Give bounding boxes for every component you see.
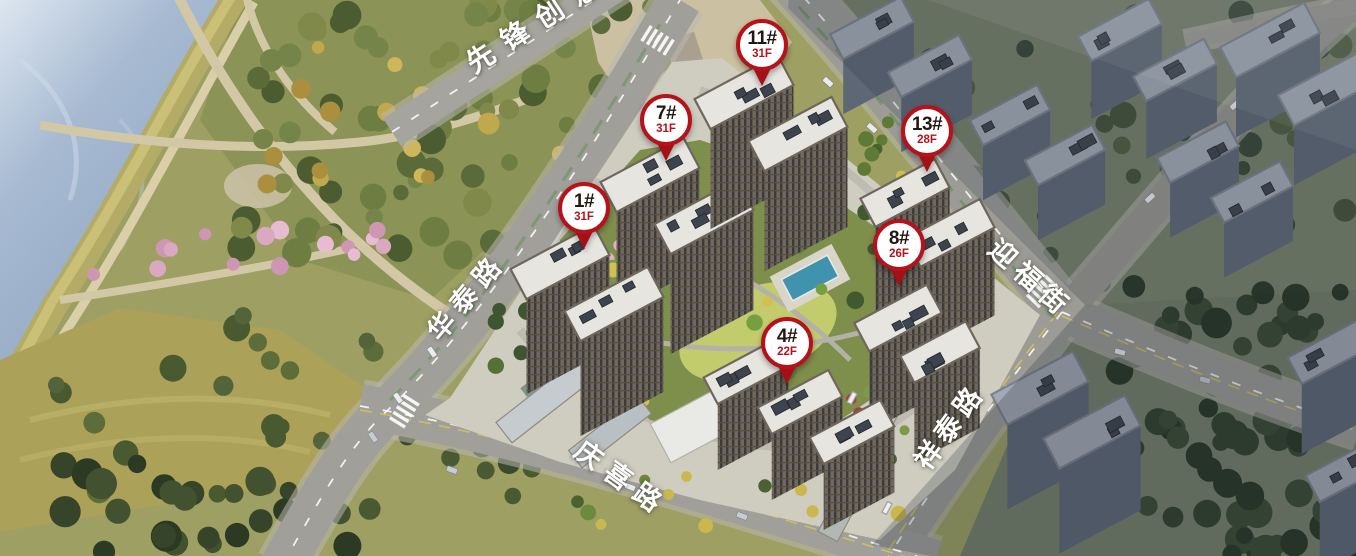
marker-floor-count: 26F <box>889 248 909 261</box>
marker-circle: 11#31F <box>736 19 788 71</box>
building-marker-1[interactable]: 11#31F <box>736 19 788 86</box>
marker-floor-count: 31F <box>752 48 772 61</box>
terrain-render <box>0 0 1356 556</box>
building-marker-4[interactable]: 1#31F <box>558 182 610 249</box>
marker-floor-count: 28F <box>917 134 937 147</box>
building-marker-5[interactable]: 8#26F <box>873 219 925 286</box>
marker-circle: 1#31F <box>558 182 610 234</box>
masterplan-map: 先锋创意华泰路迎福街祥泰路庆喜路 11#31F7#31F13#28F1#31F8… <box>0 0 1356 556</box>
marker-circle: 4#22F <box>761 317 813 369</box>
marker-circle: 8#26F <box>873 219 925 271</box>
marker-building-number: 11# <box>747 29 776 48</box>
building-marker-3[interactable]: 13#28F <box>901 105 953 172</box>
marker-floor-count: 31F <box>574 211 594 224</box>
marker-building-number: 8# <box>889 229 909 248</box>
marker-building-number: 4# <box>777 327 797 346</box>
marker-circle: 13#28F <box>901 105 953 157</box>
marker-building-number: 1# <box>574 192 594 211</box>
building-marker-6[interactable]: 4#22F <box>761 317 813 384</box>
marker-circle: 7#31F <box>640 94 692 146</box>
marker-floor-count: 31F <box>656 123 676 136</box>
marker-building-number: 13# <box>912 115 942 134</box>
building-marker-2[interactable]: 7#31F <box>640 94 692 161</box>
marker-building-number: 7# <box>656 104 676 123</box>
marker-floor-count: 22F <box>777 346 797 359</box>
